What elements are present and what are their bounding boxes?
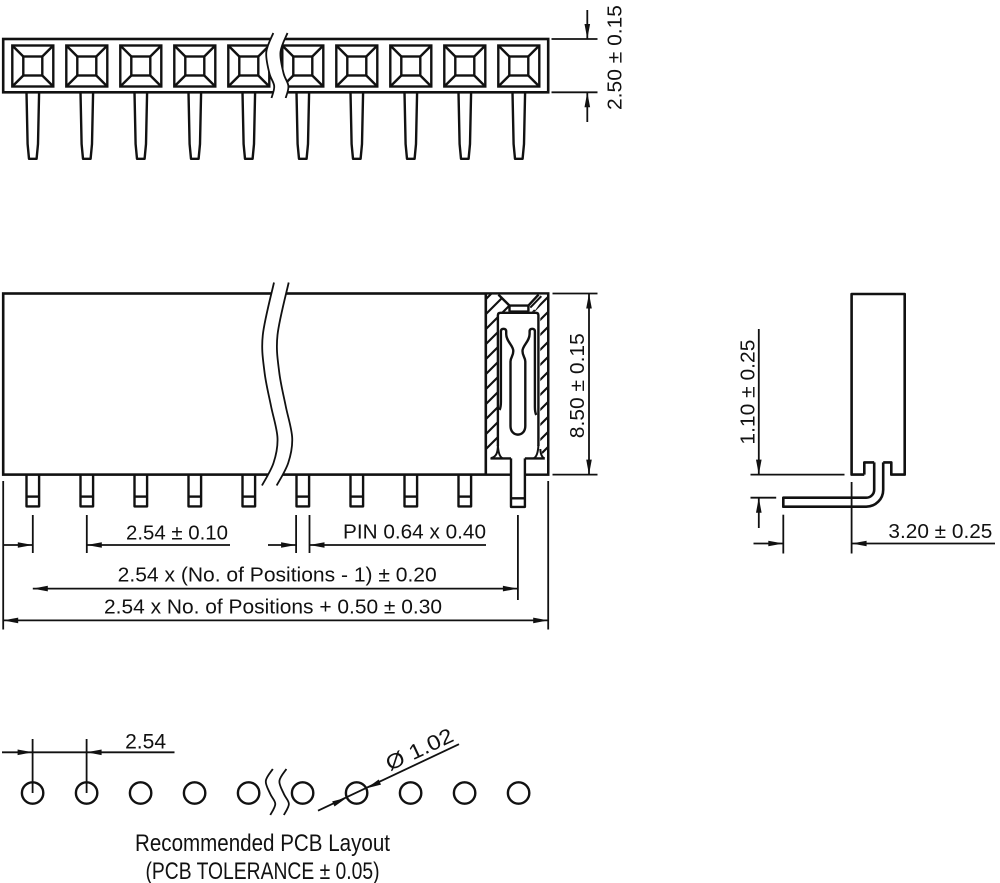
svg-text:2.50 ± 0.15: 2.50 ± 0.15 [605, 5, 627, 110]
svg-text:(PCB TOLERANCE ± 0.05): (PCB TOLERANCE ± 0.05) [146, 858, 380, 883]
svg-text:2.54 x No. of Positions + 0.50: 2.54 x No. of Positions + 0.50 ± 0.30 [104, 597, 442, 619]
svg-text:3.20 ± 0.25: 3.20 ± 0.25 [888, 521, 992, 543]
svg-text:1.10 ± 0.25: 1.10 ± 0.25 [738, 340, 760, 445]
svg-text:2.54 x (No. of Positions - 1): 2.54 x (No. of Positions - 1) ± 0.20 [118, 565, 437, 587]
svg-text:2.54 ± 0.10: 2.54 ± 0.10 [126, 523, 228, 545]
svg-text:Ø 1.02: Ø 1.02 [382, 724, 457, 775]
svg-text:8.50 ± 0.15: 8.50 ± 0.15 [567, 333, 589, 438]
svg-text:Recommended PCB Layout: Recommended PCB Layout [135, 830, 390, 857]
svg-text:PIN 0.64 x 0.40: PIN 0.64 x 0.40 [343, 522, 486, 544]
svg-text:2.54: 2.54 [125, 731, 166, 754]
